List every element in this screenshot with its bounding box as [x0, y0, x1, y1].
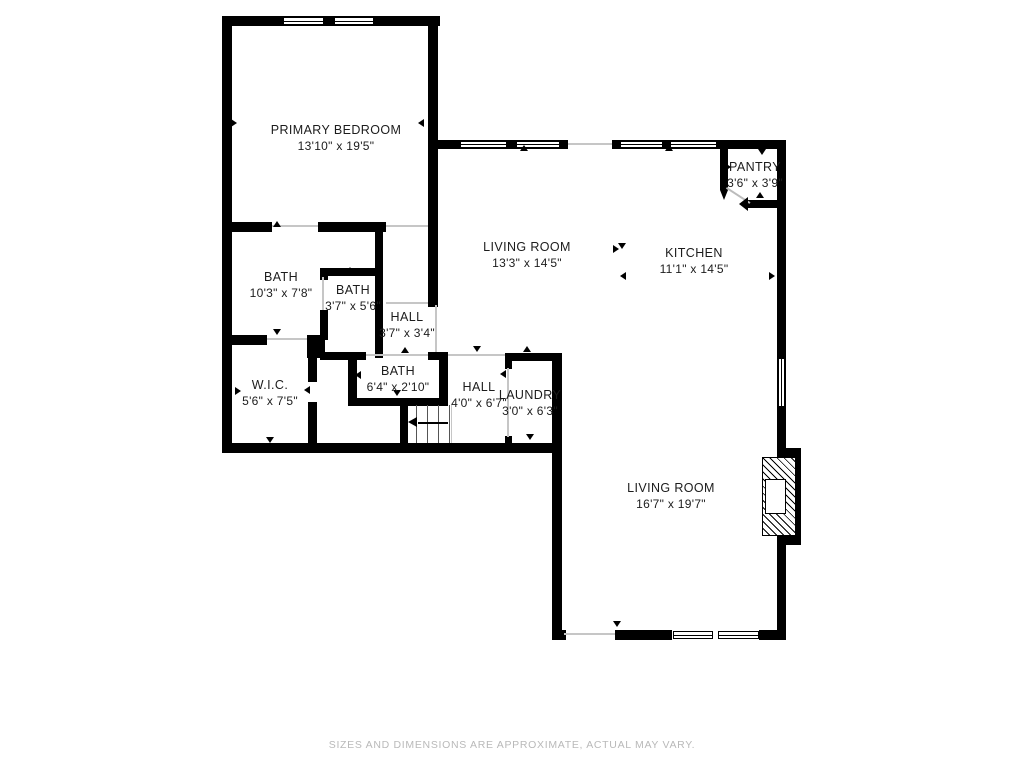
room-dimensions: 10'3" x 7'8"	[250, 285, 313, 301]
window	[778, 358, 785, 407]
room-label-wic: W.I.C.5'6" x 7'5"	[242, 377, 298, 409]
room-name: PRIMARY BEDROOM	[271, 122, 402, 138]
dimension-marker-icon	[526, 434, 534, 440]
wall-segment	[320, 352, 366, 360]
dimension-marker-icon	[231, 119, 237, 127]
dimension-marker-icon	[304, 386, 310, 394]
room-label-pantry: PANTRY3'6" x 3'9"	[727, 159, 783, 191]
wall-segment	[222, 335, 267, 345]
dimension-marker-icon	[473, 346, 481, 352]
window	[460, 141, 507, 148]
wall-segment	[505, 436, 512, 445]
room-name: HALL	[379, 309, 435, 325]
fireplace-firebox	[765, 479, 786, 514]
door-opening-line	[322, 277, 324, 310]
room-name: LIVING ROOM	[627, 480, 715, 496]
stair-tread	[427, 405, 428, 443]
disclaimer-text: SIZES AND DIMENSIONS ARE APPROXIMATE, AC…	[0, 739, 1024, 751]
door-opening-line	[386, 302, 428, 304]
room-label-laundry: LAUNDRY3'0" x 6'3"	[499, 387, 561, 419]
room-dimensions: 11'1" x 14'5"	[660, 261, 729, 277]
room-name: PANTRY	[727, 159, 783, 175]
wall-segment	[615, 630, 672, 640]
stair-tread	[438, 405, 439, 443]
window	[283, 17, 324, 25]
dimension-marker-icon	[346, 267, 354, 273]
room-name: KITCHEN	[660, 245, 729, 261]
wall-segment	[308, 402, 317, 443]
room-dimensions: 6'4" x 2'10"	[367, 379, 430, 395]
wall-segment	[222, 16, 232, 453]
room-dimensions: 3'0" x 6'3"	[499, 403, 561, 419]
room-label-hall-1: HALL3'7" x 3'4"	[379, 309, 435, 341]
room-label-living-room-lower: LIVING ROOM16'7" x 19'7"	[627, 480, 715, 512]
door-opening-line	[386, 225, 428, 227]
dimension-marker-icon	[756, 192, 764, 198]
room-label-primary-bedroom: PRIMARY BEDROOM13'10" x 19'5"	[271, 122, 402, 154]
wall-segment	[348, 398, 448, 406]
dimension-marker-icon	[613, 621, 621, 627]
room-label-bath-1: BATH10'3" x 7'8"	[250, 269, 313, 301]
door-opening-line	[564, 633, 615, 635]
dimension-marker-icon	[523, 346, 531, 352]
room-name: LAUNDRY	[499, 387, 561, 403]
dimension-marker-icon	[520, 145, 528, 151]
dimension-marker-icon	[273, 221, 281, 227]
wall-segment	[759, 630, 786, 640]
dimension-marker-icon	[618, 243, 626, 249]
room-name: BATH	[367, 363, 430, 379]
dimension-marker-icon	[769, 272, 775, 280]
wall-end-tip	[739, 197, 748, 211]
room-dimensions: 13'3" x 14'5"	[483, 255, 571, 271]
door-opening-line	[568, 143, 612, 145]
window	[673, 631, 713, 639]
room-label-bath-2: BATH3'7" x 5'6"	[325, 282, 381, 314]
dimension-marker-icon	[273, 329, 281, 335]
room-name: LIVING ROOM	[483, 239, 571, 255]
stairs-arrow-head-icon	[408, 417, 417, 427]
wall-segment	[748, 200, 786, 208]
dimension-marker-icon	[439, 371, 445, 379]
wall-segment	[222, 222, 272, 232]
door-opening-line	[267, 338, 307, 340]
room-name: BATH	[250, 269, 313, 285]
dimension-marker-icon	[418, 119, 424, 127]
dimension-marker-icon	[266, 437, 274, 443]
dimension-marker-icon	[399, 19, 407, 25]
dimension-marker-icon	[620, 272, 626, 280]
room-name: W.I.C.	[242, 377, 298, 393]
door-opening-line	[448, 354, 505, 356]
room-dimensions: 5'6" x 7'5"	[242, 393, 298, 409]
dimension-marker-icon	[665, 145, 673, 151]
dimension-marker-icon	[758, 149, 766, 155]
dimension-marker-icon	[355, 371, 361, 379]
window	[718, 631, 759, 639]
door-opening-line	[435, 305, 437, 352]
wall-segment	[428, 16, 438, 307]
wall-end-tip	[720, 190, 728, 200]
room-name: BATH	[325, 282, 381, 298]
room-dimensions: 3'7" x 5'6"	[325, 298, 381, 314]
wall-segment	[308, 358, 317, 382]
stair-tread	[449, 405, 450, 443]
wall-segment	[552, 630, 566, 640]
room-dimensions: 3'7" x 3'4"	[379, 325, 435, 341]
window	[334, 17, 374, 25]
room-dimensions: 13'10" x 19'5"	[271, 138, 402, 154]
wall-segment	[222, 16, 440, 26]
stairs-direction-arrow	[418, 422, 448, 424]
wall-segment	[400, 405, 408, 443]
room-label-living-room-upper: LIVING ROOM13'3" x 14'5"	[483, 239, 571, 271]
window	[620, 141, 663, 148]
door-opening-line	[366, 354, 428, 356]
room-label-bath-3: BATH6'4" x 2'10"	[367, 363, 430, 395]
room-dimensions: 16'7" x 19'7"	[627, 496, 715, 512]
room-dimensions: 3'6" x 3'9"	[727, 175, 783, 191]
window	[670, 141, 717, 148]
floorplan-canvas: PRIMARY BEDROOM13'10" x 19'5"LIVING ROOM…	[0, 0, 1024, 768]
dimension-marker-icon	[235, 387, 241, 395]
dimension-marker-icon	[401, 347, 409, 353]
room-label-kitchen: KITCHEN11'1" x 14'5"	[660, 245, 729, 277]
dimension-marker-icon	[500, 370, 506, 378]
